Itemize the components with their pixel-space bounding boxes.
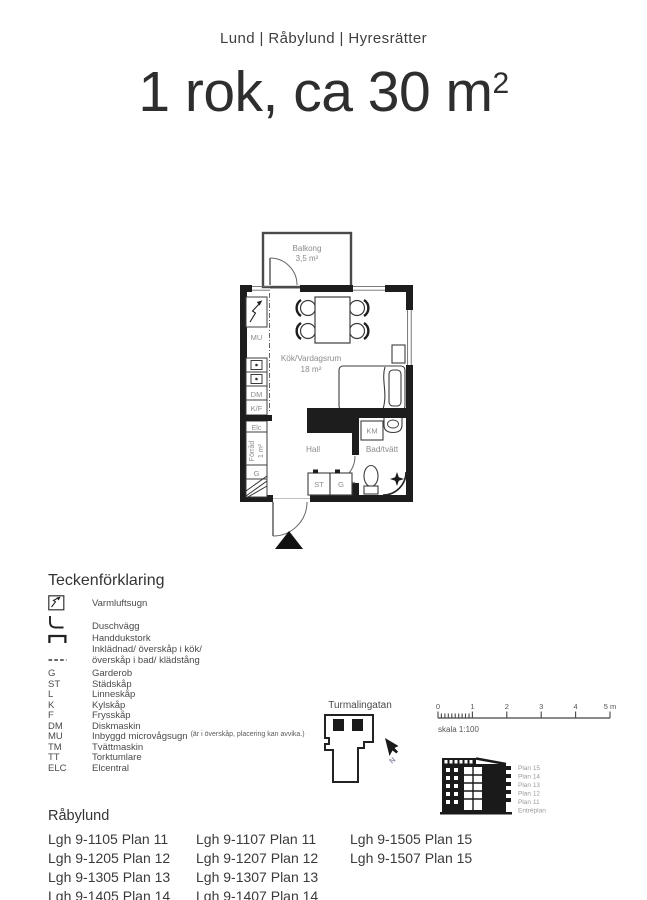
apartment-column-3: Lgh 9-1505 Plan 15 Lgh 9-1507 Plan 15 [350,830,472,868]
storage-label: Förråd [248,441,256,462]
washer-label: KM [366,427,377,436]
legend-label: Handdukstork [92,633,151,644]
apartment-entry: Lgh 9-1105 Plan 11 [48,830,170,849]
scale-caption: skala 1:100 [438,725,479,734]
scale-tick-label: 5 m [604,702,617,711]
legend-row-duschvagg: Duschvägg [48,621,140,632]
duschvagg-icon [48,615,65,630]
scale-tick-label: 2 [505,702,509,711]
scale-tick-label: 0 [436,702,440,711]
dining-table [315,297,350,343]
legend-abbr: MU [48,731,92,742]
apartment-entry: Lgh 9-1107 Plan 11 [196,830,318,849]
chair [350,301,365,316]
legend-abbr: K [48,700,92,711]
site-plan: N [300,695,420,805]
north-triangle-icon [275,531,303,549]
brochure-page: Lund | Råbylund | Hyresrätter 1 rok, ca … [0,0,647,900]
scale-tick-label: 1 [470,702,474,711]
legend-abbr: TT [48,752,92,763]
apartment-entry: Lgh 9-1307 Plan 13 [196,868,318,887]
building-icon [440,758,512,815]
handdukstork-icon [48,634,67,644]
scale-bar: 0 1 2 3 4 5 m skala 1:100 [435,700,620,740]
legend-label: Diskmaskin [92,721,141,732]
entry-door [273,499,310,537]
legend-label: Frysskåp [92,710,131,721]
storage-area-label: 1 m² [258,443,265,458]
floor-label: Plan 12 [518,791,540,798]
wardrobe-kitchen-label: G [254,469,260,478]
page-title-text: 1 rok, ca 30 m [138,60,492,124]
varmluftsugn-icon [48,595,65,611]
legend-row-g: G Garderob [48,668,132,679]
apartment-entry: Lgh 9-1505 Plan 15 [350,830,472,849]
legend-label: Tvättmaskin [92,742,143,753]
legend-label: Elcentral [92,763,129,774]
apartment-list-heading: Råbylund [48,808,608,824]
apartment-entry: Lgh 9-1205 Plan 12 [48,849,170,868]
oven-box [246,297,267,327]
page-title-superscript: 2 [492,67,508,100]
legend-abbr: DM [48,721,92,732]
apartment-entry: Lgh 9-1507 Plan 15 [350,849,472,868]
apartment-entry: Lgh 9-1405 Plan 14 [48,887,170,900]
legend-abbr: ELC [48,763,92,774]
shower-wall [383,472,406,495]
entry-door-arc [273,502,307,536]
dashed-line-icon [48,657,67,663]
legend-row-f: F Frysskåp [48,710,131,721]
chair [301,301,316,316]
legend-row-tm: TM Tvättmaskin [48,742,143,753]
legend-row-elc: ELC Elcentral [48,763,129,774]
floor-label: Plan 15 [518,765,540,772]
toilet [364,466,378,487]
scale-tick-label: 3 [539,702,543,711]
microwave-label: MU [251,333,263,342]
legend-row-mu: MU Inbyggd microvågsugn (är i överskåp, … [48,731,305,742]
elcentral-label: Elc [252,425,262,432]
dishwasher-label: DM [251,390,263,399]
legend-label: Inklädnad/ överskåp i kök/ [92,644,202,655]
apartment-location-marker [333,719,344,731]
legend-label: Linneskåp [92,689,135,700]
legend: Teckenförklaring Varmluftsugn Duschvägg [48,572,348,590]
legend-label: Torktumlare [92,752,142,763]
building-footprint [325,715,373,782]
legend-abbr: L [48,689,92,700]
balcony-label: Balkong [293,244,322,253]
floor-label: Plan 13 [518,782,540,789]
dining-set [297,297,369,343]
apartment-list: Råbylund Lgh 9-1105 Plan 11 Lgh 9-1205 P… [48,808,608,824]
legend-label: Inbyggd microvågsugn [92,731,188,742]
north-label: N [387,755,397,765]
legend-row-handdukstork: Handdukstork [48,633,151,644]
legend-abbr: G [48,668,92,679]
apartment-entry: Lgh 9-1407 Plan 14 [196,887,318,900]
floor-label: Plan 11 [518,799,540,806]
cleaning-closet-label: ST [314,480,324,489]
legend-row-varmluftsugn: Varmluftsugn [48,598,147,609]
legend-note: (är i överskåp, placering kan avvika.) [191,731,305,742]
legend-label: Garderob [92,668,132,679]
legend-row-inkladnad-1: Inklädnad/ överskåp i kök/ [48,644,202,655]
legend-abbr: TM [48,742,92,753]
chair [350,324,365,339]
legend-abbr: ST [48,679,92,690]
north-arrow: N [385,738,399,766]
wardrobe-hall-label: G [338,480,344,489]
legend-row-inkladnad-2: överskåp i bad/ klädstång [48,655,200,666]
legend-row-l: L Linneskåp [48,689,135,700]
legend-label: Städskåp [92,679,132,690]
balcony-area-label: 3,5 m² [296,254,319,263]
legend-row-k: K Kylskåp [48,700,125,711]
livingroom-area-label: 18 m² [301,365,322,374]
apartment-entry: Lgh 9-1207 Plan 12 [196,849,318,868]
apartment-column-2: Lgh 9-1107 Plan 11 Lgh 9-1207 Plan 12 Lg… [196,830,318,900]
hall-label: Hall [306,445,320,454]
apartment-column-1: Lgh 9-1105 Plan 11 Lgh 9-1205 Plan 12 Lg… [48,830,170,900]
legend-row-dm: DM Diskmaskin [48,721,141,732]
legend-label: Duschvägg [92,621,140,632]
chair [301,324,316,339]
apartment-entry: Lgh 9-1305 Plan 13 [48,868,170,887]
balcony: Balkong 3,5 m² [263,233,351,287]
fridge-freezer-label: K/F [251,404,263,413]
bath-label: Bad/tvätt [366,445,399,454]
legend-row-st: ST Städskåp [48,679,132,690]
page-title: 1 rok, ca 30 m2 [0,64,647,121]
legend-row-tt: TT Torktumlare [48,752,142,763]
legend-abbr: F [48,710,92,721]
scale-tick-label: 4 [574,702,578,711]
floorplan-drawing: Balkong 3,5 m² [225,225,425,560]
legend-label: Varmluftsugn [92,598,147,609]
legend-label: överskåp i bad/ klädstång [92,655,200,666]
apartment-location-marker [352,719,363,731]
legend-label: Kylskåp [92,700,125,711]
livingroom-label: Kök/Vardagsrum [281,354,342,363]
legend-heading: Teckenförklaring [48,572,348,590]
location-breadcrumb: Lund | Råbylund | Hyresrätter [0,30,647,47]
floor-label: Plan 14 [518,774,540,781]
bed [339,345,405,410]
